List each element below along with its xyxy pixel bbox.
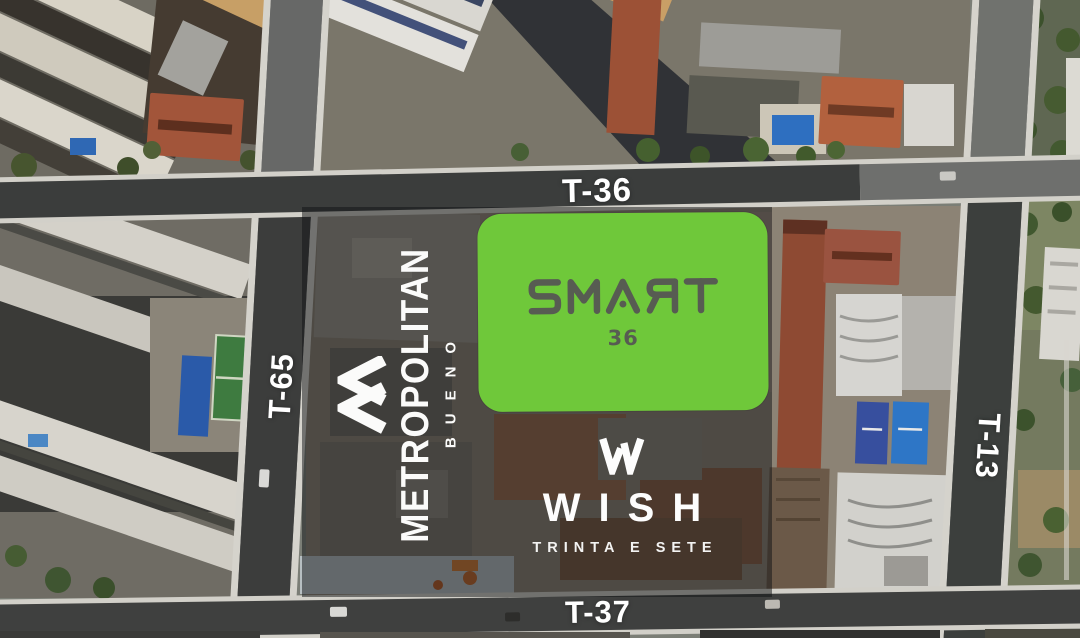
smart-letter-s: [532, 283, 558, 312]
swimming-pool: [70, 138, 96, 155]
smart-letter-m: [571, 282, 597, 311]
street-label-t36: T-36: [562, 173, 633, 207]
smart-letter-t: [687, 282, 715, 311]
block-top-center: [297, 0, 970, 180]
street-label-t37: T-37: [565, 596, 631, 628]
wish-logo-icon: [599, 437, 645, 475]
block-west: [0, 161, 262, 599]
wish-label-group: WISH TRINTA E SETE: [525, 437, 719, 556]
metropolitan-subtitle: BUENO: [444, 329, 459, 448]
metropolitan-label-group: METROPOLITAN BUENO: [338, 195, 459, 595]
street-label-t13: T-13: [971, 412, 1006, 480]
swimming-pool: [772, 115, 814, 145]
smart-36-lot: 36: [477, 212, 768, 412]
swimming-pool: [891, 401, 929, 464]
smart-logo: [525, 275, 721, 320]
swimming-pool: [178, 355, 212, 436]
smart-letter-a: [609, 282, 637, 311]
metropolitan-name: METROPOLITAN: [395, 247, 434, 542]
wish-name: WISH: [543, 488, 719, 528]
long-red-roof: [777, 219, 828, 472]
smart-unit-number: 36: [607, 328, 638, 349]
street-label-t65: T-65: [264, 352, 299, 420]
smart-letter-r: [650, 282, 675, 311]
metropolitan-logo-icon: [338, 356, 388, 434]
sports-court: [855, 401, 889, 464]
wish-subtitle: TRINTA E SETE: [532, 541, 717, 556]
aerial-location-map: 36 T-36 T-65 T-13 T-37 METROPOLITAN BUEN…: [0, 0, 1080, 638]
